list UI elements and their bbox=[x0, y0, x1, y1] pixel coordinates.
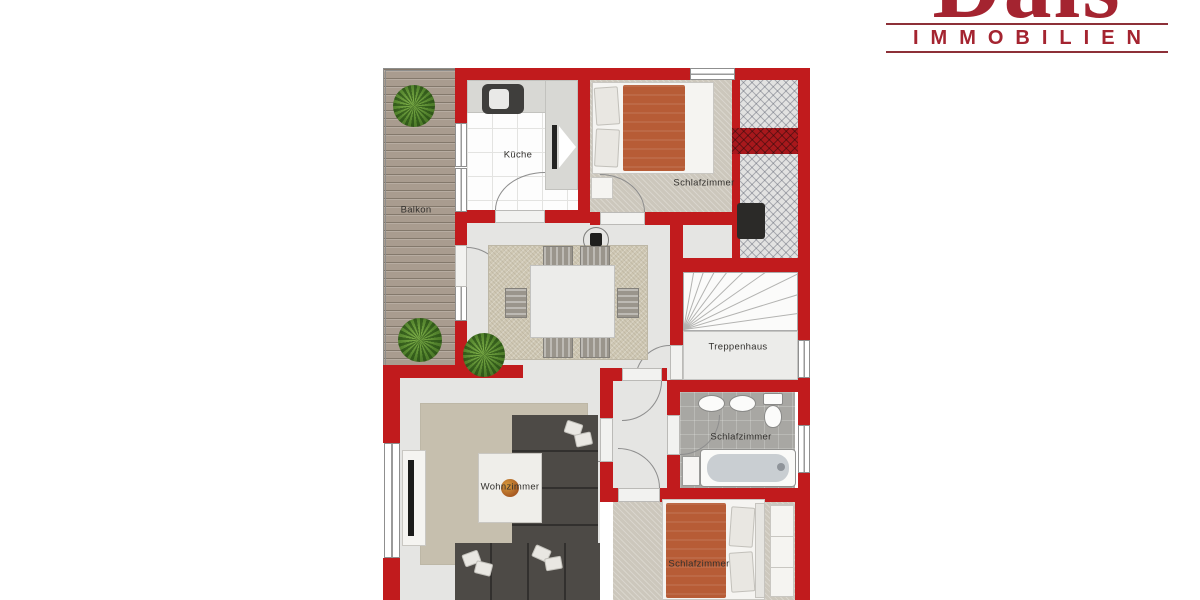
door-opening bbox=[600, 418, 613, 462]
wall bbox=[667, 455, 680, 488]
window bbox=[798, 340, 810, 378]
ceiling-lamp-icon bbox=[590, 233, 602, 246]
door-opening bbox=[600, 212, 645, 225]
wall bbox=[590, 212, 600, 225]
wall bbox=[545, 210, 590, 223]
wall bbox=[795, 502, 810, 600]
brand-subtitle: IMMOBILIEN bbox=[886, 27, 1168, 50]
door-opening bbox=[622, 368, 662, 381]
sink-basin bbox=[489, 89, 509, 109]
toilet bbox=[764, 405, 782, 428]
brand-logo: Dais IMMOBILIEN bbox=[886, 0, 1168, 58]
wall bbox=[383, 378, 400, 443]
wall bbox=[678, 380, 810, 392]
tv-sideboard bbox=[402, 450, 426, 546]
nightstand bbox=[591, 177, 613, 199]
wall bbox=[798, 68, 810, 340]
door-opening bbox=[495, 210, 545, 223]
plant bbox=[398, 318, 442, 362]
door-opening bbox=[667, 415, 680, 455]
headboard bbox=[755, 503, 765, 598]
logo-divider bbox=[886, 51, 1168, 53]
wall bbox=[670, 258, 810, 272]
appliance-door bbox=[559, 126, 576, 168]
pillow bbox=[729, 551, 756, 593]
kitchen-label: Küche bbox=[504, 150, 532, 161]
chair bbox=[617, 288, 639, 318]
window bbox=[384, 443, 400, 558]
door-opening bbox=[455, 245, 467, 287]
chair bbox=[580, 337, 610, 358]
wall bbox=[455, 212, 467, 247]
toilet bbox=[763, 393, 783, 405]
living-room-label: Wohnzimmer bbox=[481, 482, 540, 493]
bathroom-sink bbox=[698, 395, 725, 412]
bathtub-drain bbox=[777, 463, 785, 471]
bedroom-top-label: Schlafzimmer bbox=[673, 178, 734, 189]
window bbox=[798, 425, 810, 473]
chimney-block bbox=[737, 203, 765, 239]
appliance bbox=[552, 125, 557, 169]
washer bbox=[682, 456, 700, 486]
window bbox=[455, 123, 467, 167]
bathroom-label: Schlafzimmer bbox=[710, 432, 771, 443]
wall bbox=[455, 68, 690, 80]
chair bbox=[543, 246, 573, 267]
wall bbox=[600, 488, 618, 502]
stair-landing bbox=[683, 331, 798, 380]
plant bbox=[393, 85, 435, 127]
floorplan-page: Dais IMMOBILIEN bbox=[0, 0, 1200, 600]
logo-divider bbox=[886, 23, 1168, 25]
window bbox=[455, 168, 467, 212]
door-opening bbox=[618, 488, 660, 502]
wall bbox=[613, 368, 622, 381]
stairs bbox=[683, 272, 798, 331]
floorplan: Balkon Küche Schlafzimmer Treppenhaus Sc… bbox=[383, 65, 812, 600]
wall-under-roof bbox=[732, 128, 798, 154]
door-opening bbox=[670, 345, 683, 380]
wall bbox=[798, 392, 810, 425]
vestibule bbox=[683, 225, 732, 258]
wall bbox=[383, 365, 523, 378]
wardrobe bbox=[770, 504, 794, 597]
wall bbox=[667, 380, 680, 415]
wall bbox=[600, 368, 613, 418]
bathroom-sink bbox=[729, 395, 756, 412]
balcony-label: Balkon bbox=[401, 205, 432, 216]
duvet bbox=[666, 503, 726, 598]
wall bbox=[455, 68, 467, 123]
dining-table bbox=[530, 265, 615, 338]
wall bbox=[645, 212, 732, 225]
wall bbox=[467, 210, 495, 223]
pillow bbox=[594, 86, 621, 126]
window bbox=[455, 285, 467, 321]
window bbox=[690, 68, 735, 80]
staircase-label: Treppenhaus bbox=[709, 342, 768, 353]
chair bbox=[505, 288, 527, 318]
bedroom-bottom-label: Schlafzimmer bbox=[668, 559, 729, 570]
duvet bbox=[623, 85, 685, 171]
chair bbox=[543, 337, 573, 358]
pillow bbox=[729, 506, 756, 548]
plant bbox=[463, 333, 505, 377]
wall bbox=[383, 558, 400, 600]
wall bbox=[670, 225, 683, 345]
tv bbox=[408, 460, 414, 536]
chair bbox=[580, 246, 610, 267]
pillow bbox=[594, 128, 620, 167]
wall bbox=[578, 68, 590, 212]
